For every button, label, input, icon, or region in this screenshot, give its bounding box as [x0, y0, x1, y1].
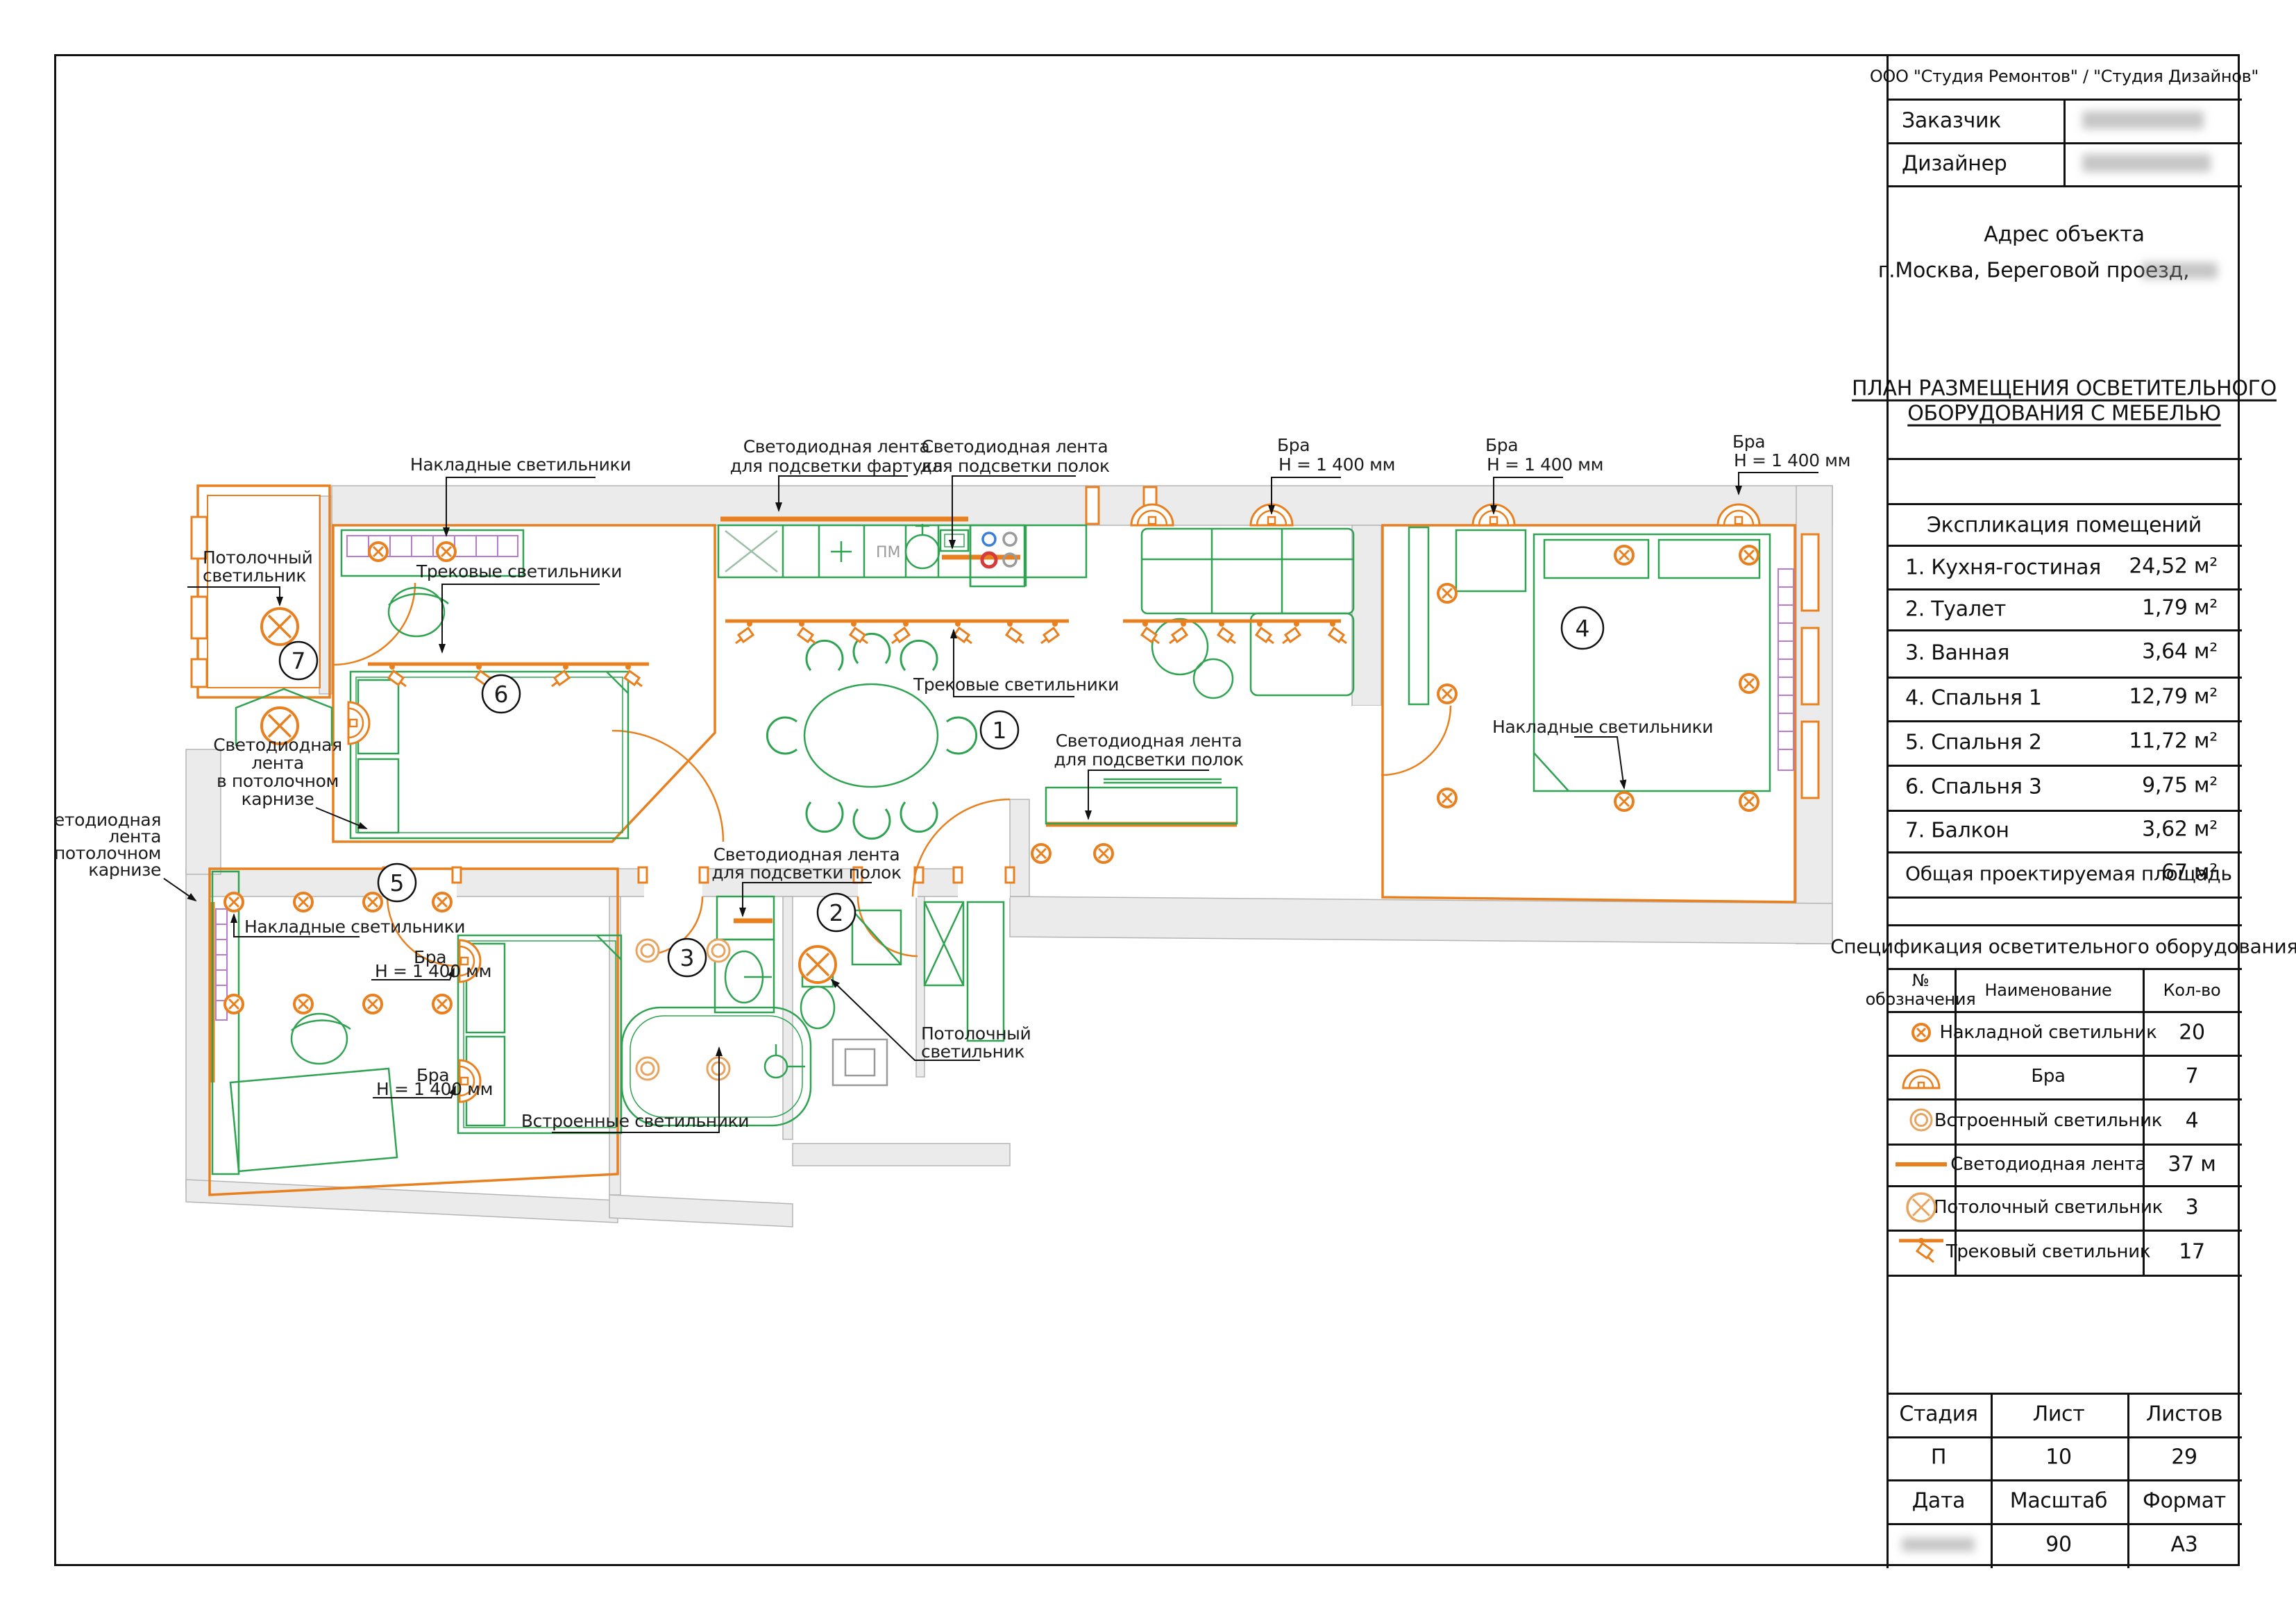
label-cornice-b6-3: в потолочном	[217, 771, 339, 791]
label-track-living: Трековые светильники	[913, 674, 1119, 695]
spec-row-name: Светодиодная лента	[1950, 1154, 2145, 1175]
label-ceiling-balcony-2: светильник	[203, 566, 306, 586]
label-led-shelves-living-2: для подсветки полок	[1054, 749, 1244, 770]
room-row-name: 3. Ванная	[1905, 641, 2009, 665]
label-surface-lights-b5: Накладные светильники	[244, 917, 465, 937]
spec-table-title: Спецификация осветительного оборудования	[1830, 935, 2296, 958]
stamp-stage-value: П	[1931, 1445, 1946, 1470]
rooms-table-title: Экспликация помещений	[1927, 513, 2202, 538]
label-bra-living-1: Бра	[1277, 435, 1310, 455]
room-row-area: 12,79 м²	[2129, 685, 2218, 709]
room-row-name: 4. Спальня 1	[1905, 686, 2042, 711]
stamp-stage-label: Стадия	[1899, 1402, 1977, 1427]
label-bra-b4a-1: Бра	[1485, 435, 1518, 455]
room-row-name: 5. Спальня 2	[1905, 731, 2042, 755]
washer	[833, 1039, 887, 1085]
label-cornice-b6-4: карнизе	[242, 789, 314, 809]
label-cornice-b5-4: карнизе	[88, 860, 161, 880]
label-led-apron-2: для подсветки фартука	[730, 456, 943, 476]
stamp-scale-value: 90	[2045, 1533, 2072, 1557]
spec-row-name: Бра	[2031, 1066, 2065, 1087]
stamp-sheet-label: Лист	[2033, 1402, 2085, 1427]
label-recessed: Встроенные светильники	[521, 1111, 749, 1131]
walls	[186, 486, 1832, 1227]
address-title: Адрес объекта	[1984, 223, 2144, 247]
spec-row-name: Встроенный светильник	[1934, 1110, 2162, 1131]
room-number-1: 1	[993, 717, 1007, 744]
stamp-scale-label: Масштаб	[2010, 1489, 2107, 1513]
room-row-area: 9,75 м²	[2142, 774, 2218, 798]
designer-label: Дизайнер	[1902, 152, 2007, 176]
spec-row-qty: 7	[2186, 1064, 2199, 1089]
label-led-apron-1: Светодиодная лента	[743, 436, 930, 457]
spec-row-qty: 20	[2179, 1021, 2205, 1045]
customer-value-redacted	[2082, 111, 2204, 129]
label-led-shelves-living-1: Светодиодная лента	[1056, 731, 1242, 751]
label-cornice-b6-1: Светодиодная	[213, 735, 341, 755]
label-led-shelves-kitchen-2: для подсветки полок	[920, 456, 1110, 476]
room-number-4: 4	[1576, 615, 1590, 642]
label-bra-b4a-2: Н = 1 400 мм	[1487, 454, 1603, 475]
spec-row-qty: 3	[2186, 1196, 2199, 1220]
label-cornice-b6-2: лента	[251, 753, 304, 773]
stamp-sheets-label: Листов	[2146, 1402, 2222, 1427]
spec-row-name: Потолочный светильник	[1934, 1197, 2163, 1218]
room-number-6: 6	[494, 681, 509, 708]
stamp-format-label: Формат	[2143, 1489, 2226, 1513]
drawing-title-line2: ОБОРУДОВАНИЯ С МЕБЕЛЬЮ	[1907, 402, 2221, 426]
room-row-area: 24,52 м²	[2129, 554, 2218, 579]
spec-symbols	[1890, 1014, 1952, 1275]
label-ceiling-toilet-2: светильник	[921, 1042, 1024, 1062]
room-row-area: 3,62 м²	[2142, 817, 2218, 842]
stamp-format-value: А3	[2170, 1533, 2197, 1557]
label-bra-b4b-1: Бра	[1732, 432, 1765, 452]
spec-col-name: Наименование	[1985, 980, 2112, 1000]
room-number-5: 5	[390, 869, 405, 897]
room-row-area: 11,72 м²	[2129, 729, 2218, 754]
stamp-date-label: Дата	[1912, 1489, 1965, 1513]
spec-col-symbol-2: обозначения	[1866, 989, 1976, 1009]
stamp-sheets-value: 29	[2171, 1445, 2197, 1470]
label-track-b6: Трековые светильники	[416, 561, 622, 581]
spec-row-qty: 37 м	[2168, 1153, 2215, 1177]
label-bra-b5b-2: Н = 1 400 мм	[376, 1079, 493, 1099]
label-led-shelves-bath-2: для подсветки полок	[711, 863, 902, 883]
spec-col-qty: Кол-во	[2163, 980, 2221, 1000]
drawing-title-line1: ПЛАН РАЗМЕЩЕНИЯ ОСВЕТИТЕЛЬНОГО	[1852, 377, 2277, 401]
stamp-sheet-value: 10	[2045, 1445, 2072, 1470]
room-row-area: 1,79 м²	[2142, 596, 2218, 620]
floor-plan: 1 2 3 4 5 6 7 Накладные светильники Свет…	[54, 54, 1886, 1566]
address-redacted	[2141, 262, 2218, 279]
room-row-name: 7. Балкон	[1905, 819, 2009, 843]
spec-row-qty: 17	[2179, 1240, 2205, 1264]
customer-label: Заказчик	[1902, 109, 2001, 133]
label-dishwasher: ПМ	[876, 544, 901, 561]
room-row-name: 2. Туалет	[1905, 597, 2006, 622]
room-number-7: 7	[292, 647, 306, 674]
label-ceiling-balcony-1: Потолочный	[203, 547, 312, 568]
room-number-2: 2	[829, 899, 844, 926]
org-name: ООО "Студия Ремонтов" / "Студия Дизайнов…	[1870, 67, 2259, 86]
spec-col-symbol-1: №	[1912, 971, 1930, 990]
label-bra-b4b-2: Н = 1 400 мм	[1734, 450, 1850, 470]
spec-row-name: Накладной светильник	[1940, 1022, 2157, 1043]
track-lights	[368, 621, 1347, 686]
label-led-shelves-kitchen-1: Светодиодная лента	[922, 436, 1108, 457]
room-number-3: 3	[680, 944, 695, 971]
label-led-shelves-bath-1: Светодиодная лента	[714, 844, 900, 865]
stove-burners	[982, 533, 1016, 567]
room-row-name: 6. Спальня 3	[1905, 775, 2042, 799]
spec-row-name: Трековый светильник	[1946, 1241, 2151, 1262]
label-surface-lights-b4: Накладные светильники	[1492, 717, 1713, 737]
label-ceiling-toilet-1: Потолочный	[921, 1023, 1031, 1044]
rooms-total-area: 67 м²	[2161, 860, 2218, 885]
label-bra-living-2: Н = 1 400 мм	[1278, 454, 1395, 475]
spec-row-qty: 4	[2186, 1109, 2199, 1133]
stamp-date-redacted	[1902, 1538, 1975, 1552]
sconces	[348, 504, 1759, 1102]
designer-value-redacted	[2082, 154, 2211, 172]
surface-lights	[225, 543, 1758, 1013]
label-surface-lights-b6: Накладные светильники	[410, 454, 631, 475]
label-bra-b5a-2: Н = 1 400 мм	[375, 961, 491, 981]
room-row-name: 1. Кухня-гостиная	[1905, 556, 2101, 580]
room-row-area: 3,64 м²	[2142, 640, 2218, 664]
